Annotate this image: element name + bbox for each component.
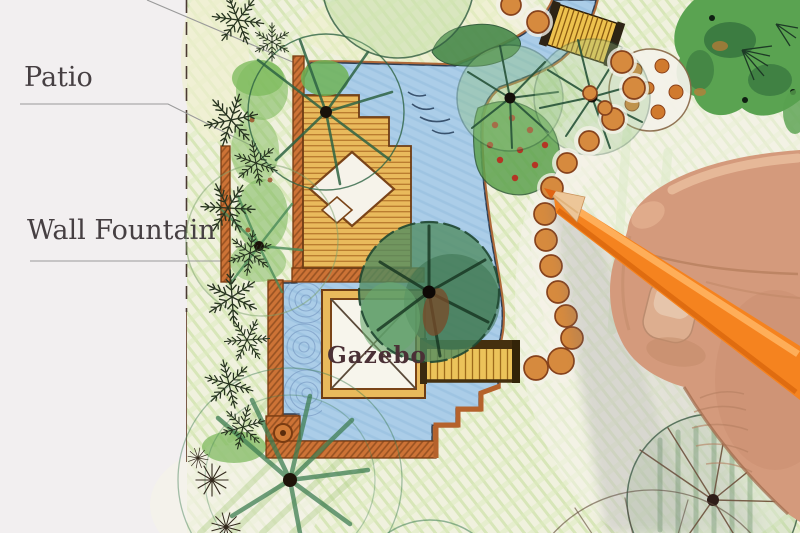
wall-fountain-label: Wall Fountain	[27, 215, 216, 246]
tree-symbol-dense	[359, 222, 500, 362]
gazebo-label: Gazebo	[327, 342, 427, 369]
patio-label: Patio	[24, 62, 93, 93]
garden-plan-photo: Patio Wall Fountain	[0, 0, 800, 533]
photo-of-garden-plan: Patio Wall Fountain	[0, 0, 800, 533]
